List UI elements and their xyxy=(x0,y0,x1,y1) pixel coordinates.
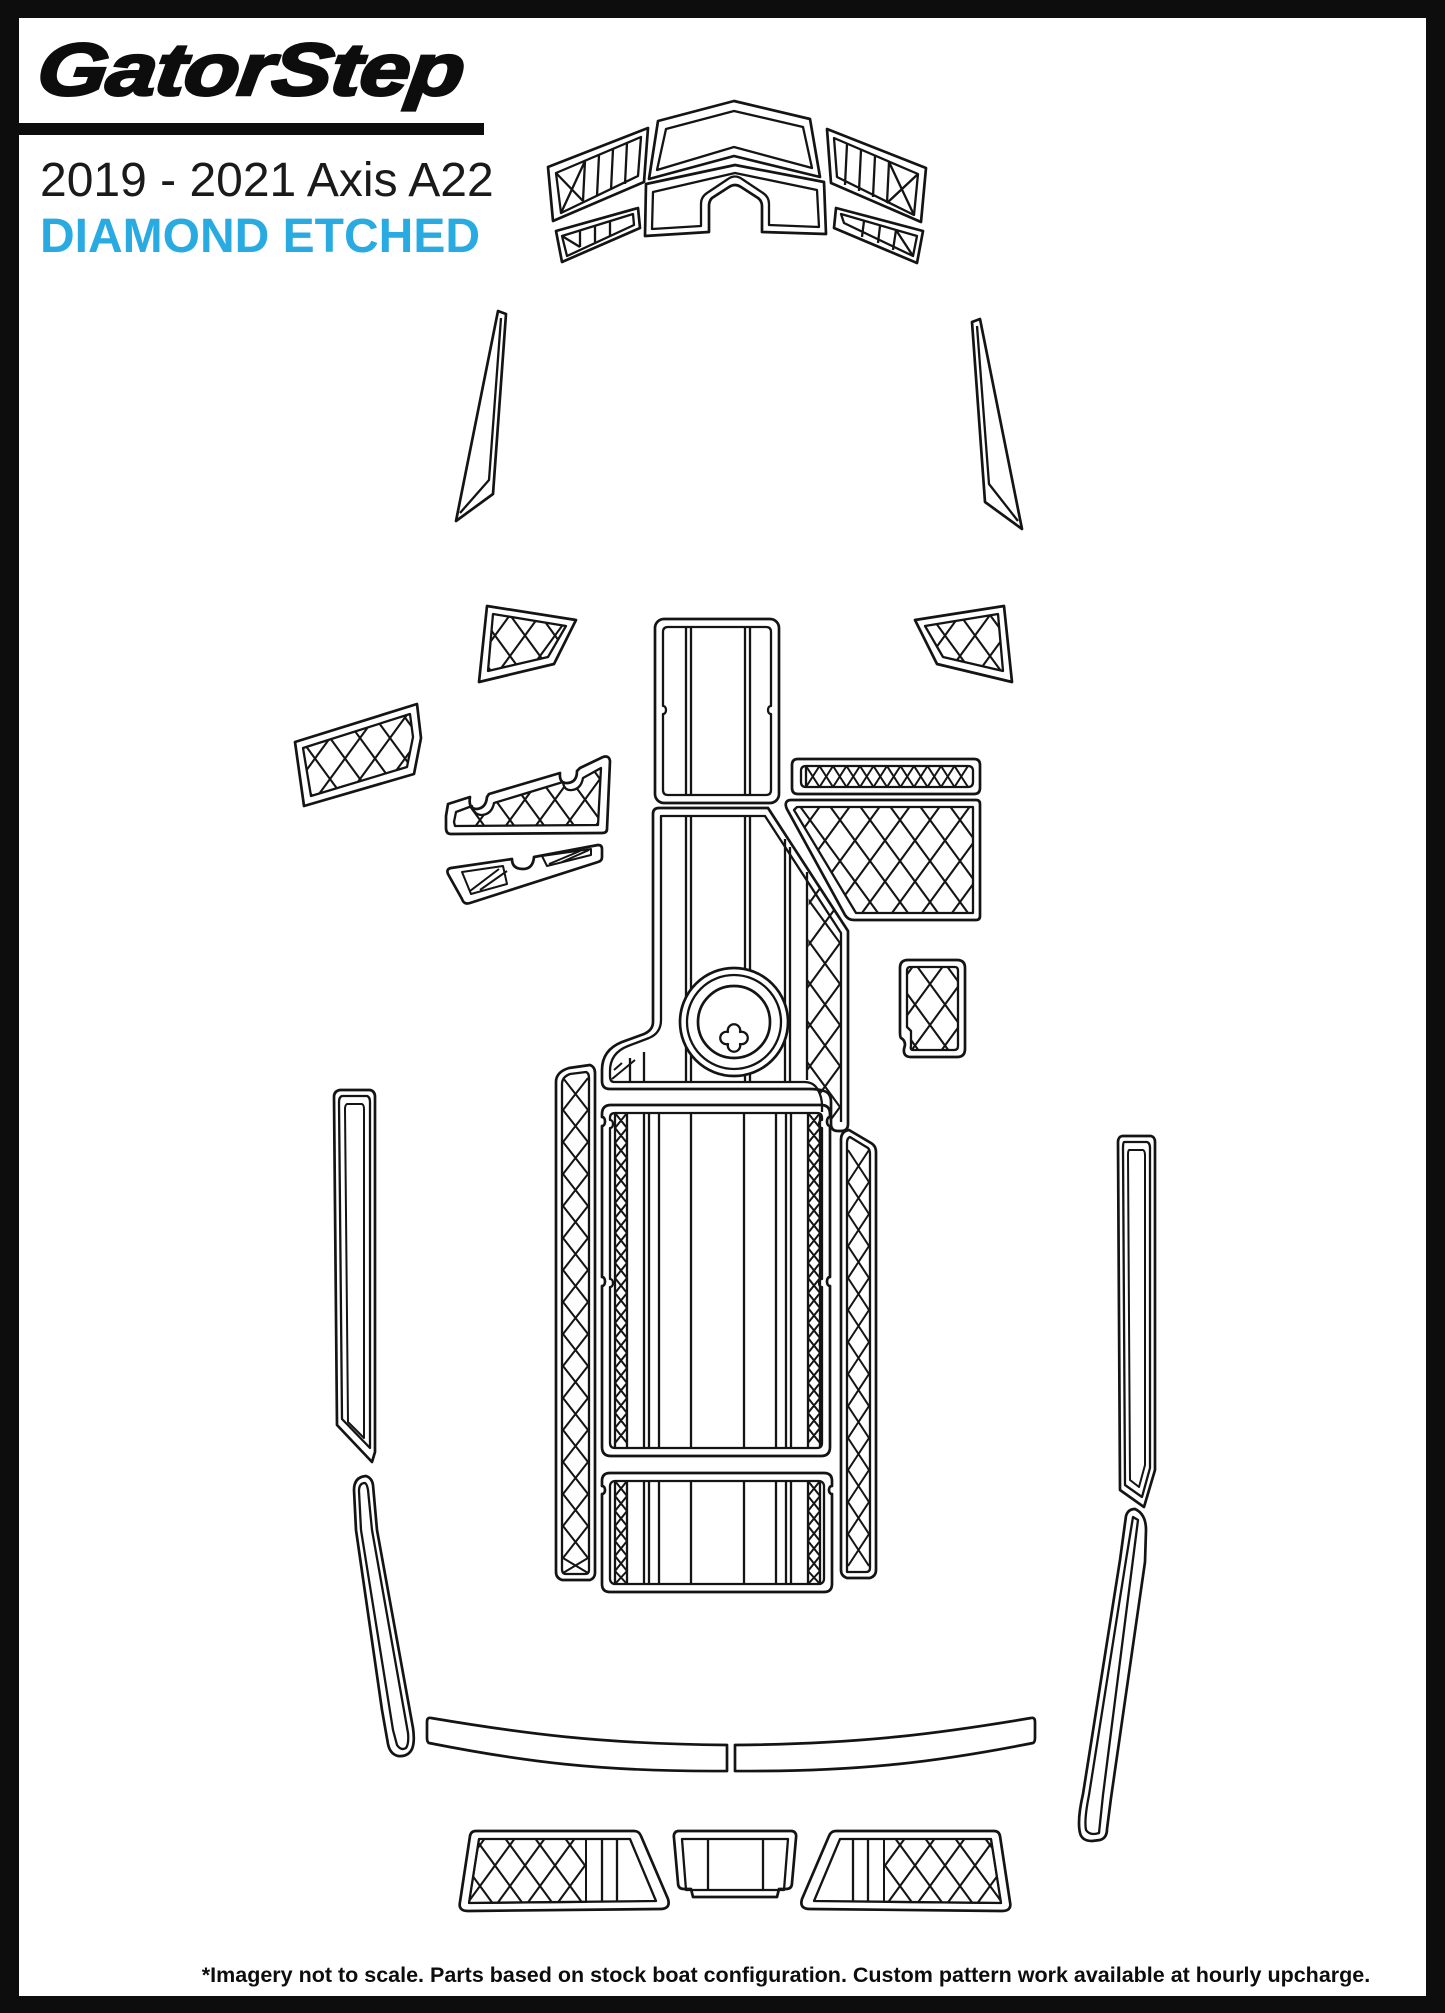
svg-text:*Imagery not to scale. Parts b: *Imagery not to scale. Parts based on st… xyxy=(202,1963,1370,1987)
svg-text:DIAMOND ETCHED: DIAMOND ETCHED xyxy=(40,210,480,263)
svg-text:2019 - 2021 Axis A22: 2019 - 2021 Axis A22 xyxy=(40,154,494,207)
svg-text:GatorStep: GatorStep xyxy=(33,28,469,111)
